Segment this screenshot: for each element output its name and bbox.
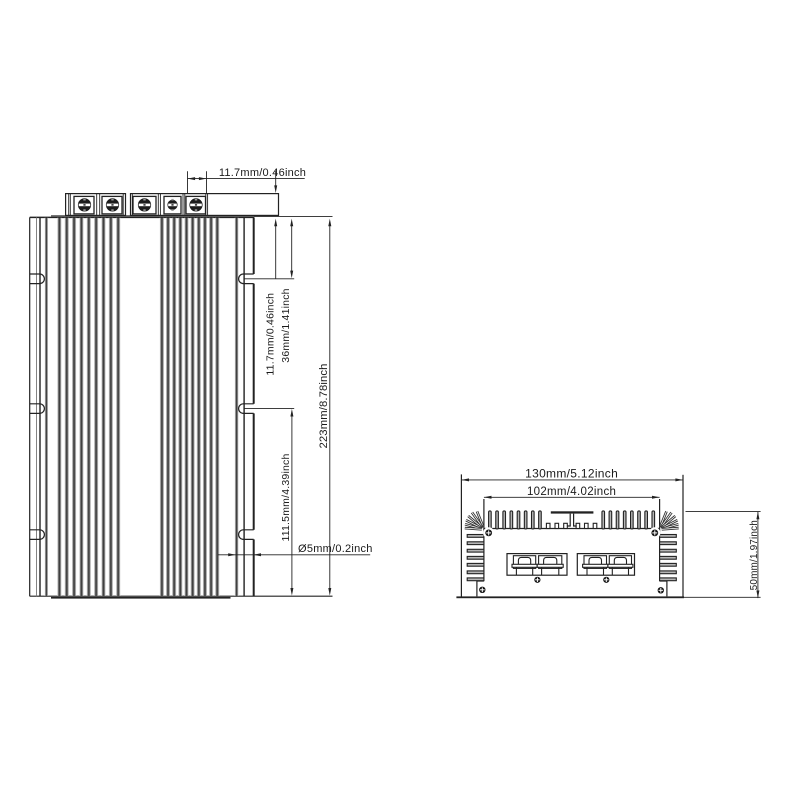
svg-text:Ø5mm/0.2inch: Ø5mm/0.2inch	[298, 543, 373, 555]
svg-text:50mm/1.97inch: 50mm/1.97inch	[749, 520, 760, 590]
svg-text:102mm/4.02inch: 102mm/4.02inch	[527, 486, 616, 498]
svg-text:130mm/5.12inch: 130mm/5.12inch	[525, 467, 618, 481]
svg-text:223mm/8.78inch: 223mm/8.78inch	[318, 364, 330, 449]
svg-text:111.5mm/4.39inch: 111.5mm/4.39inch	[280, 453, 292, 541]
svg-text:11.7mm/0.46inch: 11.7mm/0.46inch	[219, 167, 306, 179]
svg-text:36mm/1.41inch: 36mm/1.41inch	[280, 288, 292, 362]
svg-text:11.7mm/0.46inch: 11.7mm/0.46inch	[264, 293, 276, 376]
